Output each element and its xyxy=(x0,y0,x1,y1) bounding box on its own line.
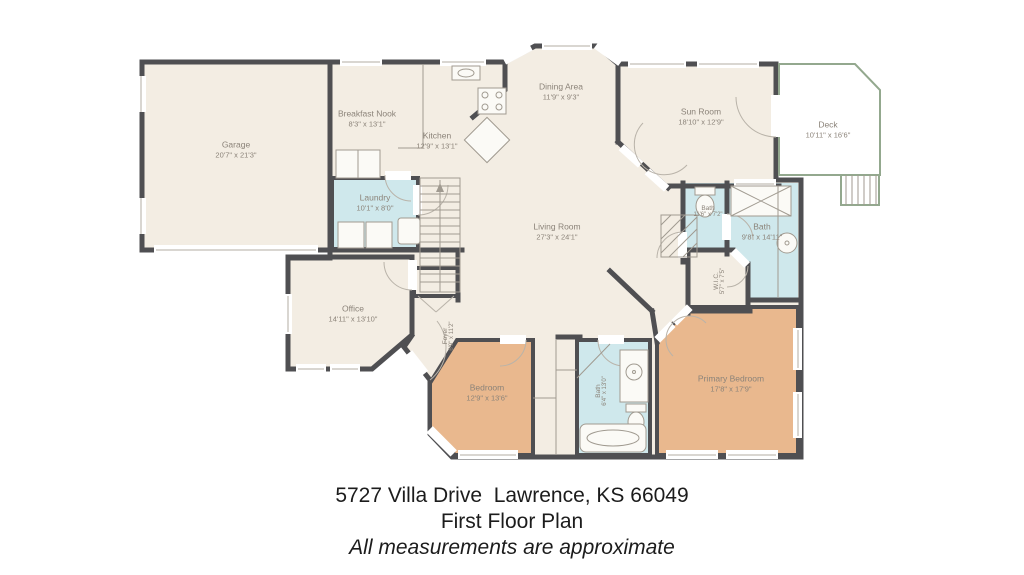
caption-plan-name: First Floor Plan xyxy=(0,509,1024,535)
bathtub xyxy=(580,424,646,452)
hall-bath-fixtures xyxy=(695,187,715,217)
toilet-bowl xyxy=(696,195,714,217)
vanity xyxy=(620,350,648,402)
deck-floor xyxy=(779,64,880,175)
caption-address: 5727 Villa Drive Lawrence, KS 66049 xyxy=(0,483,1024,509)
laundry-fixtures xyxy=(338,218,420,248)
deck-stairs-treads xyxy=(846,175,876,205)
caption-note: All measurements are approximate xyxy=(0,535,1024,561)
sunroom-deck-door xyxy=(771,95,780,137)
floor-plan-page: Garage 20'7" x 21'3" Breakfast Nook 8'3"… xyxy=(0,0,1024,575)
caption: 5727 Villa Drive Lawrence, KS 66049 Firs… xyxy=(0,483,1024,561)
deck-stairs xyxy=(841,175,879,205)
primary-bedroom-floor xyxy=(657,307,798,455)
toilet-tank xyxy=(695,187,715,195)
kitchen-sink xyxy=(452,66,480,80)
stove xyxy=(478,88,506,114)
bath-sink xyxy=(777,233,797,253)
toilet-tank-2 xyxy=(626,404,646,412)
bedroom-floor xyxy=(430,340,533,455)
